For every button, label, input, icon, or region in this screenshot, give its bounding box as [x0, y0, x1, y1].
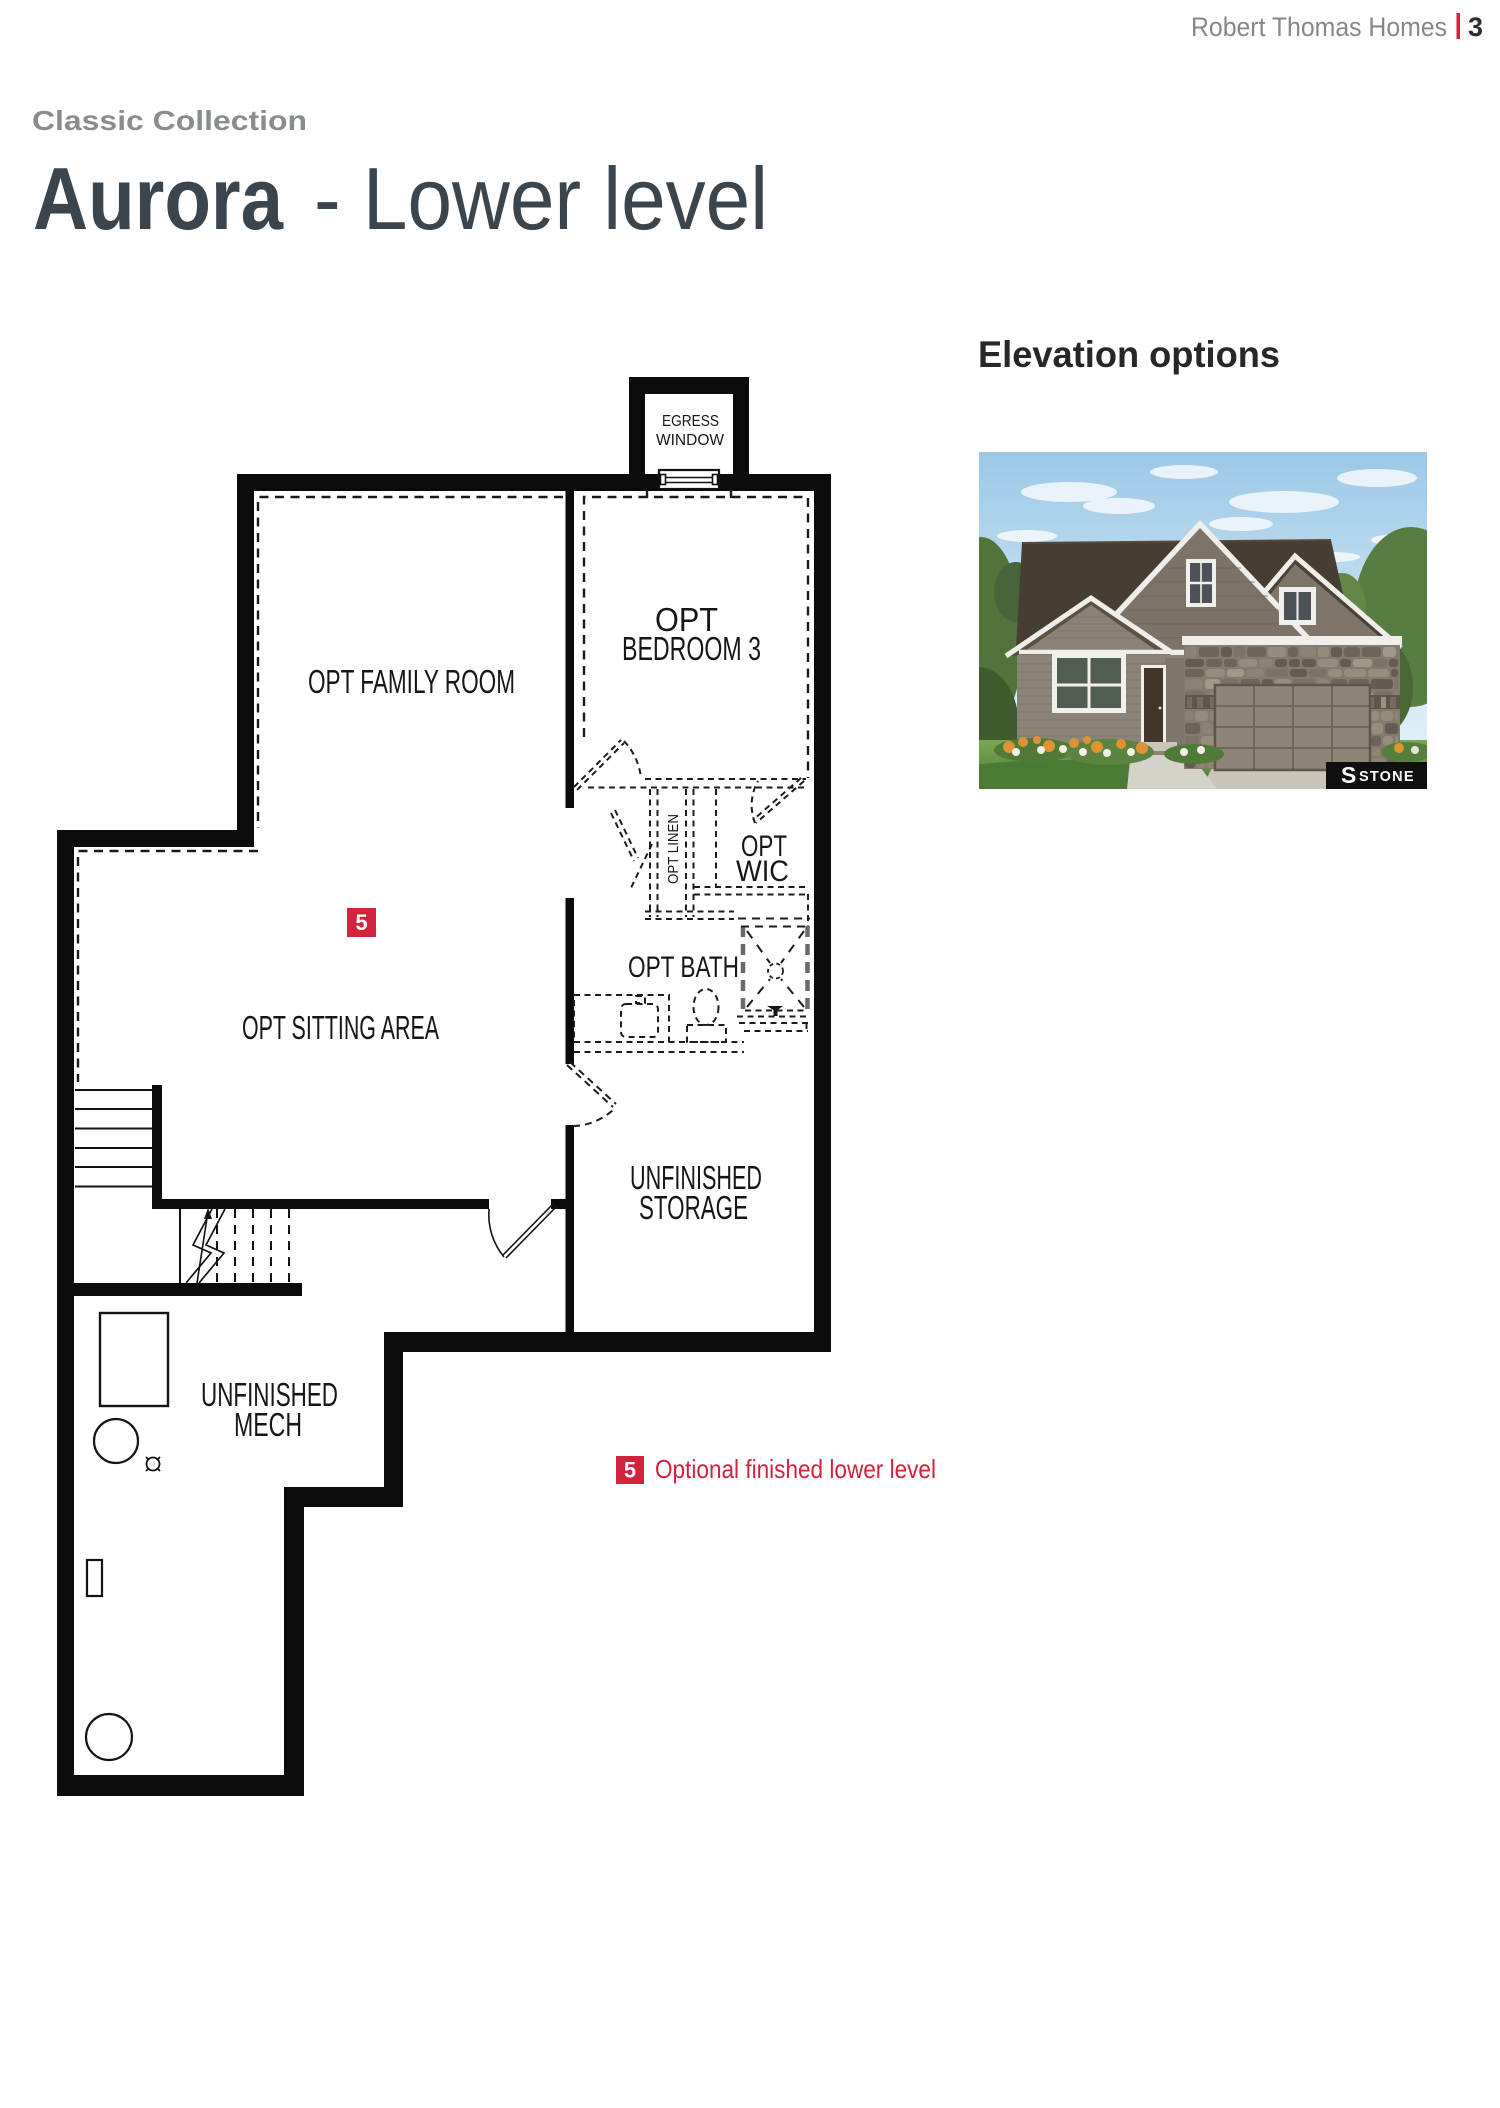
svg-text:5: 5: [355, 910, 367, 935]
svg-text:3: 3: [1468, 12, 1483, 42]
svg-text:BEDROOM 3: BEDROOM 3: [622, 630, 761, 667]
svg-text:EGRESS: EGRESS: [662, 413, 719, 430]
svg-text:OPT BATH: OPT BATH: [628, 951, 739, 984]
svg-text:5: 5: [624, 1458, 636, 1483]
svg-text:Classic Collection: Classic Collection: [32, 105, 307, 136]
svg-text:OPT LINEN: OPT LINEN: [665, 814, 682, 884]
svg-text:OPT SITTING AREA: OPT SITTING AREA: [242, 1009, 439, 1046]
svg-text:MECH: MECH: [234, 1406, 302, 1443]
svg-text:STORAGE: STORAGE: [639, 1189, 748, 1226]
svg-text:Optional finished lower level: Optional finished lower level: [655, 1454, 936, 1484]
svg-text:Aurora: Aurora: [33, 149, 284, 248]
svg-text:Robert Thomas Homes: Robert Thomas Homes: [1191, 12, 1447, 42]
svg-text:S: S: [1341, 762, 1356, 788]
svg-text:OPT FAMILY ROOM: OPT FAMILY ROOM: [308, 663, 515, 700]
svg-text:WIC: WIC: [736, 855, 789, 888]
svg-text:STONE: STONE: [1359, 769, 1415, 785]
svg-text:WINDOW: WINDOW: [656, 432, 725, 449]
svg-text:Elevation options: Elevation options: [978, 334, 1280, 375]
svg-text:- Lower level: - Lower level: [314, 149, 768, 248]
